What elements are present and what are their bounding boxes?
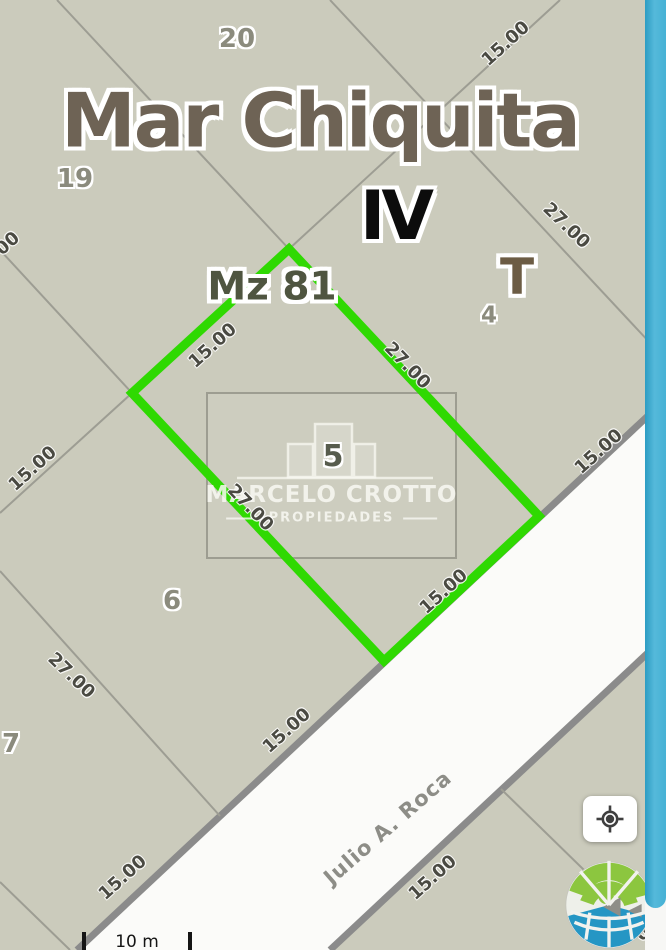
globe-logo-icon [561, 857, 657, 950]
scrollbar-thumb[interactable] [645, 0, 666, 908]
gps-target-icon [594, 803, 626, 835]
scrollbar-track[interactable] [645, 0, 666, 950]
locate-button[interactable] [583, 796, 637, 842]
scale-tick-right [188, 932, 192, 950]
scale-label: 10 m [115, 932, 159, 950]
map-viewport[interactable]: MARCELO CROTTO PROPIEDADES 2015.00Mar Ch… [0, 0, 666, 950]
scale-tick-left [82, 932, 86, 950]
map-canvas[interactable] [0, 0, 666, 950]
